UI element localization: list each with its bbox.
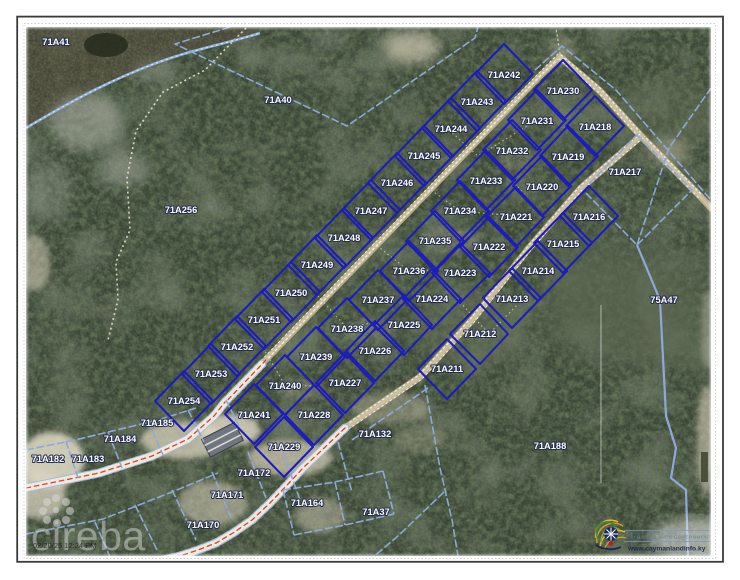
svg-text:cireba: cireba <box>31 513 146 559</box>
svg-text:www.caymanlandinfo.ky: www.caymanlandinfo.ky <box>627 546 706 553</box>
svg-text:71A172: 71A172 <box>238 468 271 478</box>
svg-text:71A232: 71A232 <box>496 146 529 156</box>
svg-text:71A249: 71A249 <box>301 260 334 270</box>
svg-text:71A235: 71A235 <box>419 236 452 246</box>
svg-text:71A239: 71A239 <box>300 352 333 362</box>
svg-text:71A246: 71A246 <box>381 178 414 188</box>
svg-text:71A217: 71A217 <box>609 167 642 177</box>
svg-text:71A219: 71A219 <box>552 152 585 162</box>
svg-text:71A251: 71A251 <box>248 315 281 325</box>
svg-text:71A229: 71A229 <box>268 442 301 452</box>
svg-text:71A215: 71A215 <box>547 239 580 249</box>
svg-text:71A220: 71A220 <box>526 182 559 192</box>
svg-text:71A211: 71A211 <box>431 364 463 374</box>
svg-text:71A233: 71A233 <box>470 176 503 186</box>
svg-text:71A132: 71A132 <box>359 429 392 439</box>
svg-text:71A212: 71A212 <box>464 329 497 339</box>
svg-text:71A183: 71A183 <box>72 454 105 464</box>
svg-text:75A47: 75A47 <box>650 295 677 305</box>
svg-text:71A252: 71A252 <box>221 342 254 352</box>
svg-text:71A224: 71A224 <box>416 294 449 304</box>
svg-text:71A240: 71A240 <box>269 381 302 391</box>
svg-text:71A223: 71A223 <box>444 268 477 278</box>
svg-text:71A171: 71A171 <box>211 490 244 500</box>
svg-text:02/20/25 12:24 PM: 02/20/25 12:24 PM <box>33 541 96 550</box>
svg-text:71A244: 71A244 <box>435 124 468 134</box>
svg-text:71A242: 71A242 <box>488 70 521 80</box>
svg-text:71A231: 71A231 <box>521 116 554 126</box>
svg-text:71A214: 71A214 <box>522 266 555 276</box>
svg-text:71A248: 71A248 <box>328 233 361 243</box>
svg-text:71A227: 71A227 <box>329 378 362 388</box>
svg-text:71A170: 71A170 <box>187 520 220 530</box>
svg-text:71A228: 71A228 <box>298 410 331 420</box>
svg-text:71A245: 71A245 <box>408 151 441 161</box>
svg-text:71A226: 71A226 <box>359 346 392 356</box>
svg-text:CAYMAN ISLANDS GOVERNMENT: CAYMAN ISLANDS GOVERNMENT <box>626 534 711 540</box>
svg-text:71A185: 71A185 <box>141 418 174 428</box>
svg-text:71A225: 71A225 <box>388 320 421 330</box>
svg-text:71A238: 71A238 <box>331 324 364 334</box>
svg-text:71A230: 71A230 <box>547 86 580 96</box>
svg-text:71A254: 71A254 <box>168 396 201 406</box>
svg-text:71A237: 71A237 <box>362 295 395 305</box>
svg-text:71A236: 71A236 <box>393 266 426 276</box>
svg-text:71A221: 71A221 <box>500 212 533 222</box>
svg-text:71A247: 71A247 <box>355 206 388 216</box>
svg-text:71A188: 71A188 <box>534 441 567 451</box>
svg-text:71A41: 71A41 <box>42 37 69 47</box>
svg-text:71A37: 71A37 <box>362 507 389 517</box>
svg-text:71A40: 71A40 <box>264 95 291 105</box>
svg-text:71A222: 71A222 <box>473 242 506 252</box>
svg-text:71A250: 71A250 <box>275 288 308 298</box>
svg-text:71A243: 71A243 <box>461 97 494 107</box>
svg-text:71A234: 71A234 <box>444 206 477 216</box>
svg-text:71A253: 71A253 <box>195 369 228 379</box>
svg-text:71A218: 71A218 <box>579 122 612 132</box>
svg-text:71A216: 71A216 <box>573 212 606 222</box>
svg-text:71A213: 71A213 <box>496 294 529 304</box>
svg-text:71A182: 71A182 <box>32 454 65 464</box>
svg-text:71A184: 71A184 <box>104 434 137 444</box>
svg-text:71A241: 71A241 <box>238 410 271 420</box>
svg-text:71A256: 71A256 <box>165 205 198 215</box>
svg-text:71A164: 71A164 <box>291 498 324 508</box>
